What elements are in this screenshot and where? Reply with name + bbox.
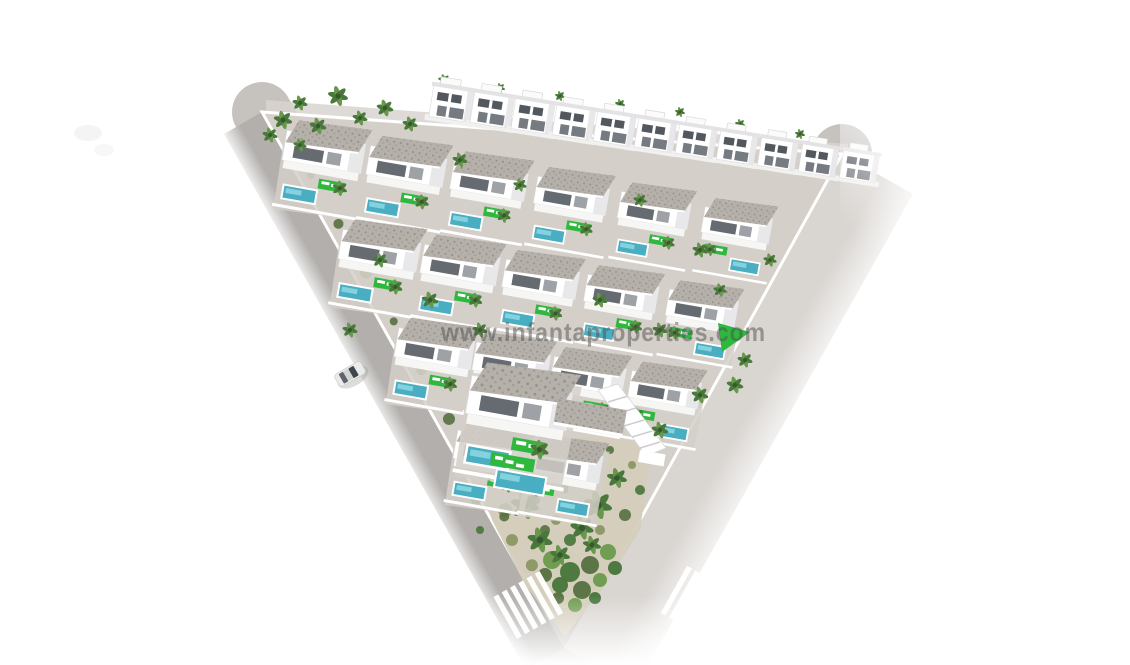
shrub — [390, 317, 398, 325]
palm-tree — [327, 85, 348, 106]
villa — [608, 178, 699, 274]
render-canvas: www.infantaproperties.com — [0, 0, 1130, 665]
tree — [600, 544, 616, 560]
shrub — [526, 559, 538, 571]
topright-fade — [840, 110, 1060, 270]
shrub — [619, 509, 631, 521]
palm-tree — [795, 129, 806, 140]
shrub — [506, 534, 518, 546]
tree — [581, 556, 599, 574]
tree — [552, 577, 568, 593]
shrub — [635, 485, 645, 495]
watermark-text: www.infantaproperties.com — [440, 317, 766, 347]
villa — [439, 147, 536, 249]
tree — [608, 561, 622, 575]
villa — [271, 115, 374, 224]
smudge-top-left — [74, 125, 114, 156]
villa — [692, 194, 781, 287]
aerial-render: www.infantaproperties.com — [0, 0, 1130, 665]
villa — [355, 131, 455, 237]
shrub — [476, 526, 484, 534]
palm-tree — [675, 107, 686, 118]
shrub — [628, 461, 636, 469]
shrub — [443, 413, 455, 425]
bottom-fade — [140, 596, 1000, 665]
villa — [524, 162, 618, 261]
tree — [593, 573, 607, 587]
